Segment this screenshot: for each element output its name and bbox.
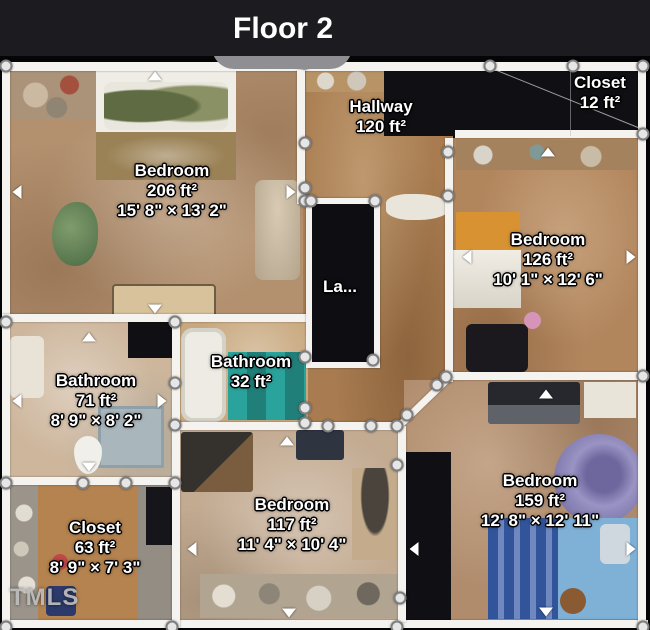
wall-handle[interactable] (637, 370, 650, 383)
wall-handle[interactable] (567, 60, 580, 73)
shelf-159 (584, 382, 636, 418)
wall-arrow-left-icon[interactable] (410, 542, 419, 556)
wall-handle[interactable] (401, 409, 414, 422)
wall-arrow-left-icon[interactable] (188, 542, 197, 556)
wall-handle[interactable] (394, 592, 407, 605)
wall-handle[interactable] (637, 60, 650, 73)
room-label-bedroom-117: Bedroom 117 ft² 11' 4" × 10' 4" (238, 495, 347, 555)
clutter-bottom-117 (200, 574, 398, 618)
room-area: 32 ft² (211, 372, 291, 392)
room-name: La... (323, 277, 357, 297)
room-label-bedroom-206: Bedroom 206 ft² 15' 8" × 13' 2" (117, 161, 227, 221)
wall-arrow-right-icon[interactable] (627, 542, 636, 556)
wall-bedroom126-bottom[interactable] (445, 372, 646, 380)
wall-handle[interactable] (367, 354, 380, 367)
room-name: Bedroom (481, 471, 599, 491)
wall-arrow-down-icon[interactable] (282, 609, 296, 618)
wall-left-column-divider[interactable] (172, 322, 180, 628)
wall-handle[interactable] (484, 60, 497, 73)
wall-handle[interactable] (442, 146, 455, 159)
title-bar: Floor 2 (0, 0, 650, 56)
room-label-bathroom-71: Bathroom 71 ft² 8' 9" × 8' 2" (51, 371, 142, 431)
desk-159 (488, 382, 580, 424)
plant-206 (52, 202, 98, 266)
wall-handle[interactable] (77, 477, 90, 490)
wall-outer-bottom[interactable] (2, 620, 648, 628)
room-dims: 11' 4" × 10' 4" (238, 535, 347, 555)
tv-117 (296, 430, 344, 460)
wall-handle[interactable] (369, 195, 382, 208)
unscanned-between-bedrooms (406, 452, 451, 620)
room-label-hallway: Hallway 120 ft² (349, 97, 412, 137)
room-name: Bedroom (493, 230, 603, 250)
wall-bedroom206-bottom[interactable] (2, 314, 306, 322)
unscanned-bathroom-corner (128, 322, 175, 358)
wall-handle[interactable] (299, 402, 312, 415)
vanity-71 (10, 336, 44, 398)
wall-handle[interactable] (391, 459, 404, 472)
wall-handle[interactable] (391, 621, 404, 630)
closet-vertical-line (570, 70, 571, 136)
room-label-laundry: La... (323, 277, 357, 297)
wall-arrow-right-icon[interactable] (627, 250, 636, 264)
room-area: 120 ft² (349, 117, 412, 137)
wall-handle[interactable] (120, 477, 133, 490)
wall-handle[interactable] (322, 420, 335, 433)
wall-handle[interactable] (391, 420, 404, 433)
tmls-watermark: TMLS (10, 584, 79, 612)
wall-arrow-up-icon[interactable] (541, 148, 555, 157)
wall-handle[interactable] (299, 182, 312, 195)
wall-bedroom126-left[interactable] (445, 138, 453, 382)
wall-arrow-left-icon[interactable] (13, 394, 22, 408)
wall-handle[interactable] (365, 420, 378, 433)
wall-handle[interactable] (299, 351, 312, 364)
wall-arrow-down-icon[interactable] (148, 305, 162, 314)
room-area: 117 ft² (238, 515, 347, 535)
bed-206-pillows (104, 82, 228, 130)
cat-tree-126 (466, 324, 528, 372)
room-area: 206 ft² (117, 181, 227, 201)
room-dims: 15' 8" × 13' 2" (117, 201, 227, 221)
room-name: Closet (574, 73, 626, 93)
room-label-closet-63: Closet 63 ft² 8' 9" × 7' 3" (50, 518, 141, 578)
hallway-blanket (386, 194, 450, 220)
wall-handle[interactable] (169, 377, 182, 390)
hallway-clutter-top (306, 70, 384, 92)
bed-159-pillow (600, 524, 630, 564)
wall-handle[interactable] (637, 621, 650, 630)
wall-outer-left[interactable] (2, 62, 10, 628)
wall-handle[interactable] (0, 60, 13, 73)
room-area: 63 ft² (50, 538, 141, 558)
wall-handle[interactable] (299, 417, 312, 430)
wall-handle[interactable] (0, 477, 13, 490)
room-name: Bathroom (211, 352, 291, 372)
room-area: 71 ft² (51, 391, 142, 411)
wall-arrow-down-icon[interactable] (82, 463, 96, 472)
dresser-117 (352, 468, 398, 560)
teddy-bear-159 (560, 588, 586, 614)
wall-handle[interactable] (169, 316, 182, 329)
floor-title: Floor 2 (233, 12, 333, 46)
wall-arrow-down-icon[interactable] (539, 608, 553, 617)
room-name: Bedroom (238, 495, 347, 515)
wall-bathroom71-bottom[interactable] (2, 477, 180, 485)
room-name: Hallway (349, 97, 412, 117)
wall-handle[interactable] (442, 190, 455, 203)
wall-handle[interactable] (637, 128, 650, 141)
desk-117 (181, 432, 253, 492)
unscanned-closet-63-corner (146, 487, 175, 545)
room-area: 126 ft² (493, 250, 603, 270)
room-dims: 12' 8" × 12' 11" (481, 511, 599, 531)
wall-arrow-up-icon[interactable] (82, 333, 96, 342)
bed-159-runner (488, 518, 558, 619)
wall-handle[interactable] (440, 371, 453, 384)
room-name: Bathroom (51, 371, 142, 391)
wall-arrow-right-icon[interactable] (158, 394, 167, 408)
room-name: Bedroom (117, 161, 227, 181)
wall-outer-right[interactable] (638, 62, 646, 628)
wall-handle[interactable] (166, 621, 179, 630)
floorplan-canvas: Bedroom 206 ft² 15' 8" × 13' 2" Hallway … (0, 0, 650, 630)
room-area: 159 ft² (481, 491, 599, 511)
wall-arrow-left-icon[interactable] (13, 185, 22, 199)
wall-arrow-up-icon[interactable] (148, 72, 162, 81)
wall-arrow-up-icon[interactable] (539, 390, 553, 399)
clutter-top-left (10, 70, 95, 120)
room-name: Closet (50, 518, 141, 538)
room-dims: 8' 9" × 7' 3" (50, 558, 141, 578)
room-label-bedroom-126: Bedroom 126 ft² 10' 1" × 12' 6" (493, 230, 603, 290)
wall-arrow-right-icon[interactable] (287, 185, 296, 199)
room-label-bathroom-32: Bathroom 32 ft² (211, 352, 291, 392)
pink-item-126 (524, 312, 541, 329)
room-label-bedroom-159: Bedroom 159 ft² 12' 8" × 12' 11" (481, 471, 599, 531)
wall-handle[interactable] (0, 621, 13, 630)
room-label-closet-12: Closet 12 ft² (574, 73, 626, 113)
wall-arrow-left-icon[interactable] (463, 250, 472, 264)
room-dims: 8' 9" × 8' 2" (51, 411, 142, 431)
wall-arrow-up-icon[interactable] (280, 437, 294, 446)
wall-handle[interactable] (169, 477, 182, 490)
room-area: 12 ft² (574, 93, 626, 113)
wall-handle[interactable] (299, 137, 312, 150)
wall-closet12-bottom[interactable] (455, 130, 646, 138)
wall-handle[interactable] (305, 195, 318, 208)
room-dims: 10' 1" × 12' 6" (493, 270, 603, 290)
wall-handle[interactable] (169, 419, 182, 432)
wall-handle[interactable] (0, 316, 13, 329)
